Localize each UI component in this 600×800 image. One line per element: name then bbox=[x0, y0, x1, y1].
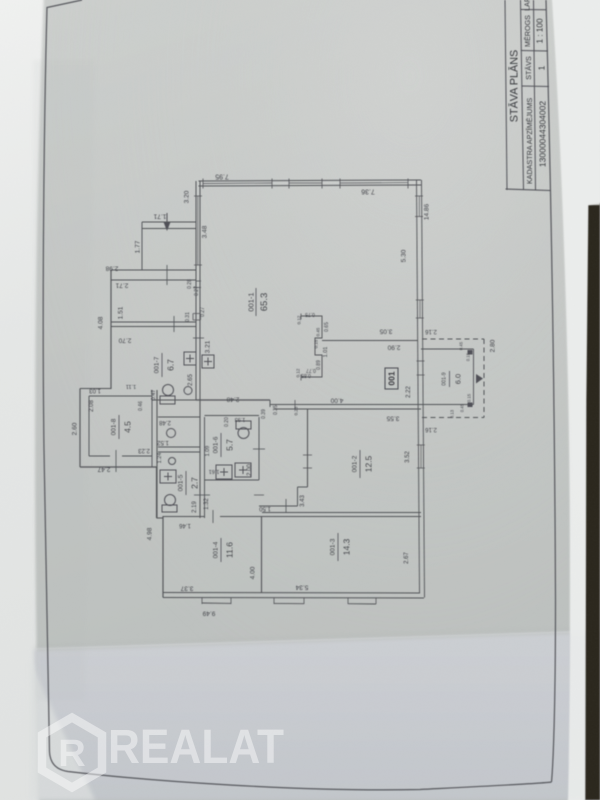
svg-text:R: R bbox=[58, 733, 85, 775]
svg-text:REALAT: REALAT bbox=[108, 721, 284, 774]
